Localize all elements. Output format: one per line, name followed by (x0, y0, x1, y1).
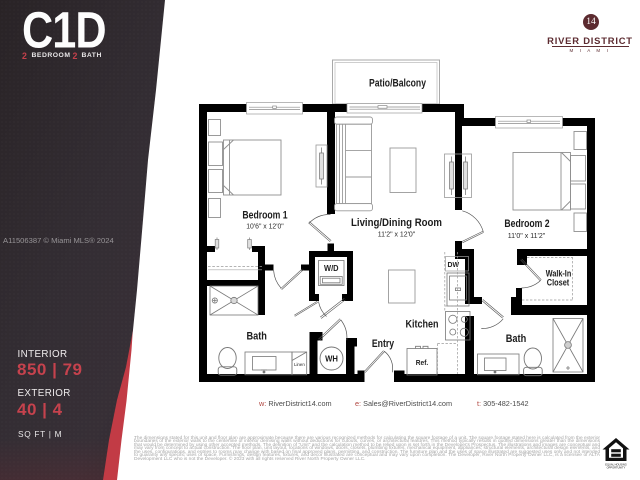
svg-text:W/D: W/D (324, 264, 339, 273)
svg-text:11'2" x 12'0": 11'2" x 12'0" (378, 229, 416, 238)
svg-text:Bath: Bath (506, 333, 527, 345)
svg-text:10'6" x 12'0": 10'6" x 12'0" (246, 222, 284, 231)
svg-text:Closet: Closet (547, 278, 570, 288)
svg-text:Entry: Entry (372, 338, 395, 350)
svg-text:OPPORTUNITY: OPPORTUNITY (607, 465, 626, 469)
svg-text:Bath: Bath (246, 331, 267, 343)
svg-text:Bedroom 2: Bedroom 2 (504, 218, 549, 230)
svg-text:Ref.: Ref. (416, 360, 429, 367)
svg-text:Patio/Balcony: Patio/Balcony (369, 78, 426, 90)
svg-text:11'0" x 11'2": 11'0" x 11'2" (508, 231, 546, 240)
svg-text:WH: WH (325, 355, 338, 364)
svg-text:Linen: Linen (294, 362, 305, 367)
svg-text:Kitchen: Kitchen (406, 319, 439, 331)
svg-text:Living/Dining Room: Living/Dining Room (351, 217, 442, 229)
svg-text:Bedroom 1: Bedroom 1 (242, 209, 288, 221)
